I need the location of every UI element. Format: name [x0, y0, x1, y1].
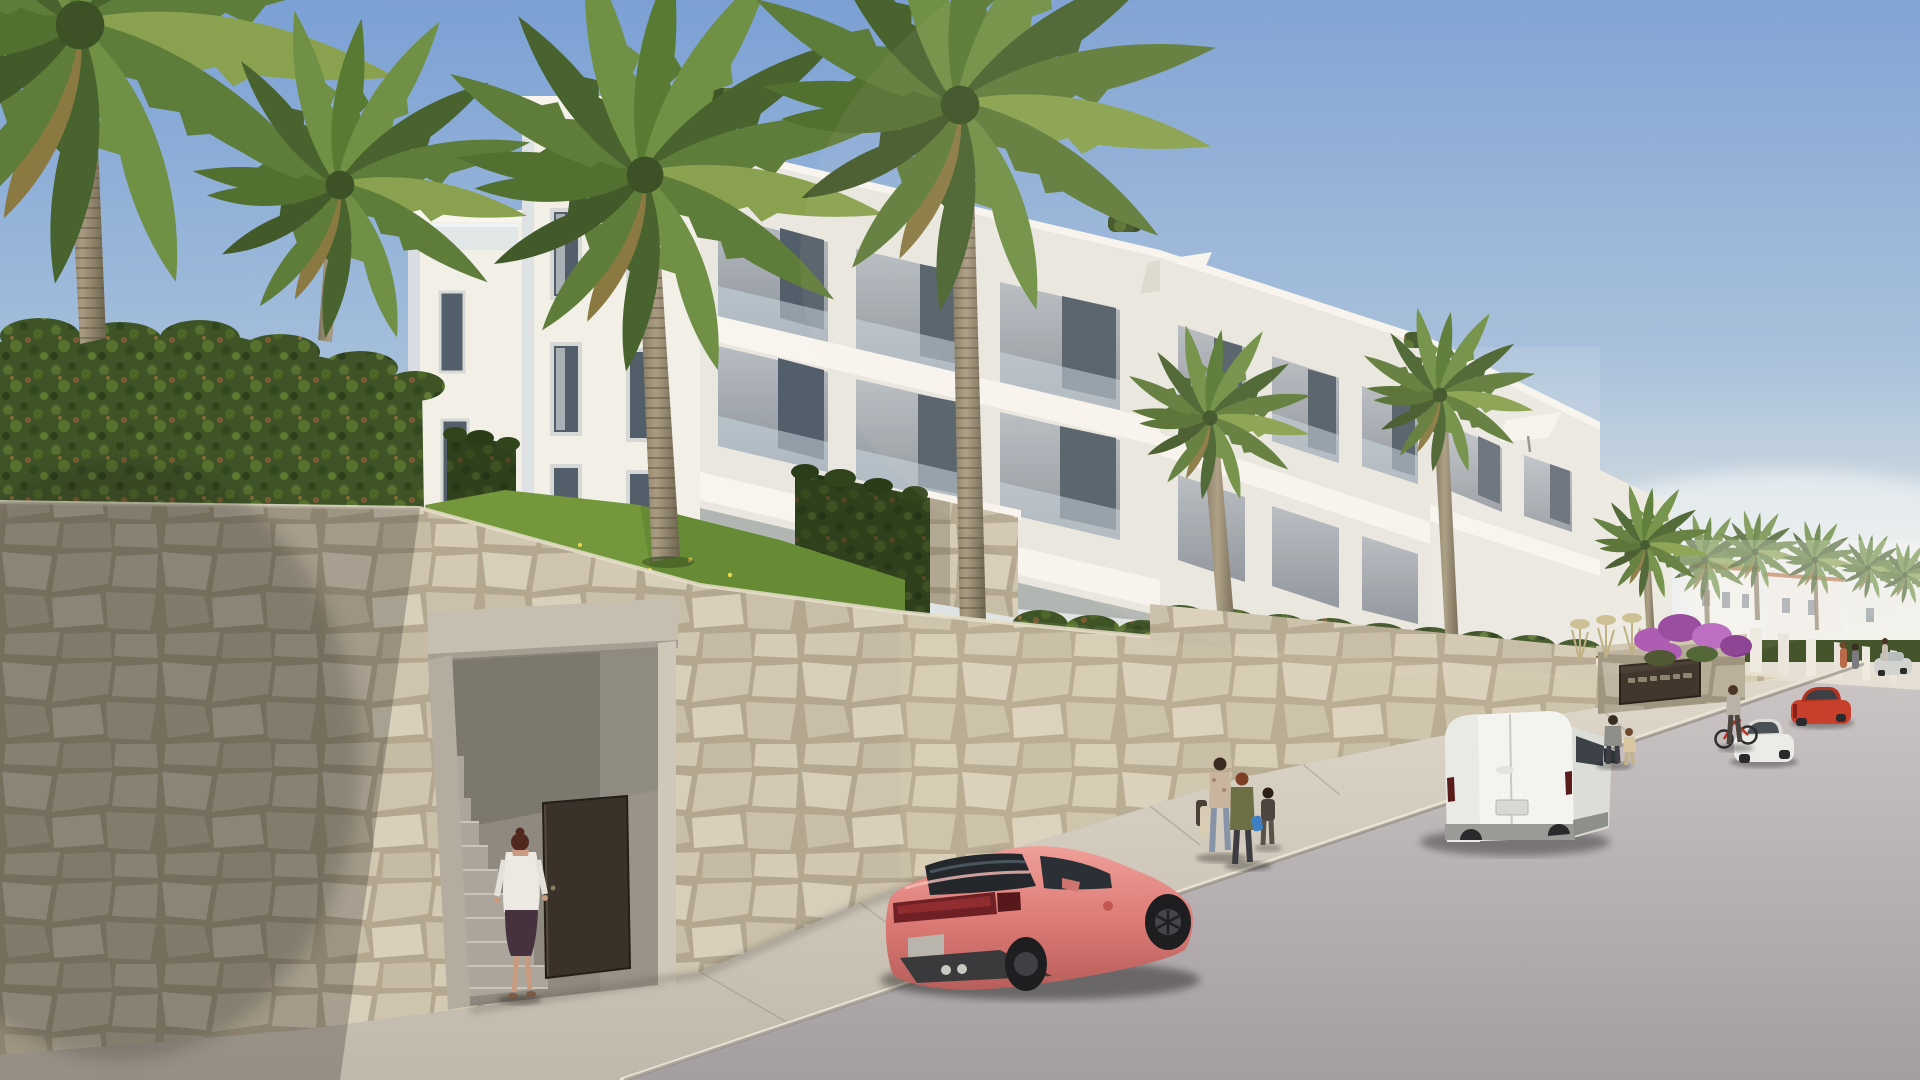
render-viewport: [0, 0, 1920, 1080]
entrance-jamb: [658, 641, 676, 986]
exterior-render: [0, 0, 1920, 1080]
entrance-recess: [428, 598, 678, 1010]
white-van: [1420, 711, 1618, 856]
entrance-door: [543, 796, 630, 978]
door-handle: [551, 886, 556, 891]
